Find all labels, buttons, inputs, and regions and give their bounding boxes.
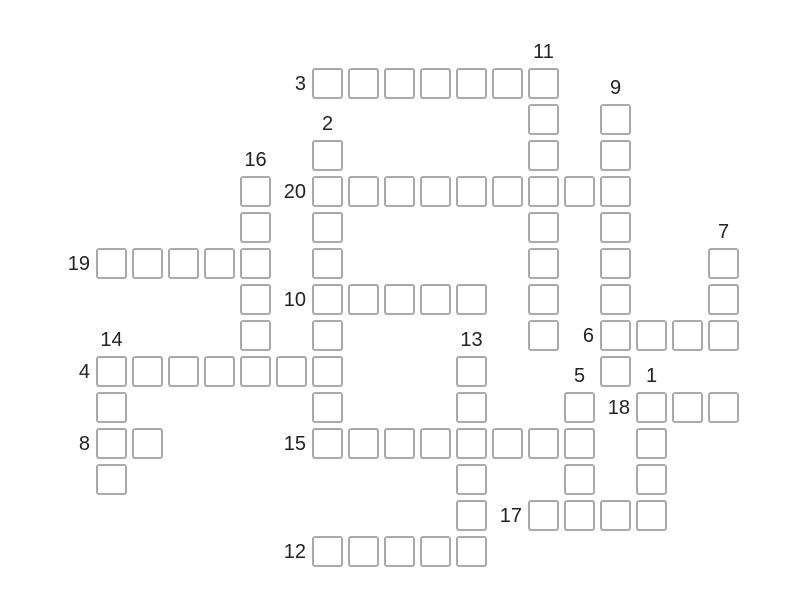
- crossword-cell[interactable]: [528, 68, 559, 99]
- crossword-cell[interactable]: [420, 68, 451, 99]
- crossword-cell[interactable]: [348, 428, 379, 459]
- crossword-cell[interactable]: [384, 68, 415, 99]
- crossword-cell[interactable]: [420, 284, 451, 315]
- crossword-cell[interactable]: [600, 500, 631, 531]
- crossword-cell[interactable]: [96, 356, 127, 387]
- crossword-cell[interactable]: [96, 464, 127, 495]
- crossword-cell[interactable]: [240, 284, 271, 315]
- crossword-cell[interactable]: [528, 104, 559, 135]
- crossword-cell[interactable]: [528, 284, 559, 315]
- clue-number-label: 4: [79, 362, 90, 382]
- crossword-cell[interactable]: [456, 536, 487, 567]
- crossword-cell[interactable]: [420, 428, 451, 459]
- crossword-cell[interactable]: [96, 392, 127, 423]
- crossword-cell[interactable]: [96, 248, 127, 279]
- crossword-cell[interactable]: [312, 392, 343, 423]
- clue-number-label: 19: [68, 254, 90, 274]
- clue-number-label: 1: [646, 366, 657, 386]
- crossword-cell[interactable]: [708, 284, 739, 315]
- crossword-cell[interactable]: [708, 392, 739, 423]
- clue-number-label: 5: [574, 366, 585, 386]
- crossword-cell[interactable]: [600, 320, 631, 351]
- crossword-cell[interactable]: [528, 176, 559, 207]
- crossword-cell[interactable]: [528, 500, 559, 531]
- clue-number-label: 20: [284, 182, 306, 202]
- crossword-cell[interactable]: [96, 428, 127, 459]
- crossword-cell[interactable]: [456, 284, 487, 315]
- crossword-cell[interactable]: [312, 428, 343, 459]
- crossword-cell[interactable]: [456, 68, 487, 99]
- crossword-cell[interactable]: [312, 140, 343, 171]
- clue-number-label: 6: [583, 326, 594, 346]
- crossword-cell[interactable]: [600, 212, 631, 243]
- crossword-cell[interactable]: [312, 248, 343, 279]
- crossword-cell[interactable]: [564, 392, 595, 423]
- crossword-cell[interactable]: [240, 356, 271, 387]
- crossword-cell[interactable]: [456, 500, 487, 531]
- crossword-cell[interactable]: [384, 428, 415, 459]
- crossword-cell[interactable]: [600, 104, 631, 135]
- crossword-cell[interactable]: [708, 320, 739, 351]
- clue-number-label: 9: [610, 78, 621, 98]
- crossword-cell[interactable]: [456, 356, 487, 387]
- crossword-cell[interactable]: [636, 500, 667, 531]
- crossword-cell[interactable]: [204, 248, 235, 279]
- clue-number-label: 18: [608, 398, 630, 418]
- crossword-cell[interactable]: [600, 356, 631, 387]
- crossword-cell[interactable]: [708, 248, 739, 279]
- crossword-board: 1234567891011121314151617181920: [0, 0, 800, 600]
- crossword-cell[interactable]: [384, 176, 415, 207]
- crossword-cell[interactable]: [636, 392, 667, 423]
- crossword-cell[interactable]: [204, 356, 235, 387]
- crossword-cell[interactable]: [132, 428, 163, 459]
- crossword-cell[interactable]: [384, 284, 415, 315]
- crossword-cell[interactable]: [168, 248, 199, 279]
- crossword-cell[interactable]: [600, 248, 631, 279]
- crossword-cell[interactable]: [456, 464, 487, 495]
- clue-number-label: 8: [79, 434, 90, 454]
- crossword-cell[interactable]: [528, 140, 559, 171]
- crossword-cell[interactable]: [564, 500, 595, 531]
- clue-number-label: 12: [284, 542, 306, 562]
- crossword-cell[interactable]: [240, 320, 271, 351]
- crossword-cell[interactable]: [348, 176, 379, 207]
- crossword-cell[interactable]: [600, 176, 631, 207]
- crossword-cell[interactable]: [240, 212, 271, 243]
- crossword-cell[interactable]: [312, 176, 343, 207]
- crossword-cell[interactable]: [312, 320, 343, 351]
- crossword-cell[interactable]: [456, 428, 487, 459]
- crossword-cell[interactable]: [132, 248, 163, 279]
- crossword-cell[interactable]: [528, 320, 559, 351]
- crossword-cell[interactable]: [240, 176, 271, 207]
- crossword-cell[interactable]: [564, 464, 595, 495]
- crossword-cell[interactable]: [132, 356, 163, 387]
- crossword-cell[interactable]: [312, 68, 343, 99]
- crossword-cell[interactable]: [492, 428, 523, 459]
- crossword-cell[interactable]: [564, 428, 595, 459]
- crossword-cell[interactable]: [312, 212, 343, 243]
- crossword-cell[interactable]: [636, 464, 667, 495]
- crossword-cell[interactable]: [528, 212, 559, 243]
- crossword-cell[interactable]: [564, 176, 595, 207]
- crossword-cell[interactable]: [636, 428, 667, 459]
- crossword-cell[interactable]: [600, 284, 631, 315]
- crossword-cell[interactable]: [456, 392, 487, 423]
- crossword-cell[interactable]: [420, 536, 451, 567]
- clue-number-label: 14: [100, 330, 122, 350]
- crossword-cell[interactable]: [456, 176, 487, 207]
- crossword-cell[interactable]: [636, 320, 667, 351]
- clue-number-label: 7: [718, 222, 729, 242]
- crossword-cell[interactable]: [276, 356, 307, 387]
- crossword-cell[interactable]: [348, 68, 379, 99]
- clue-number-label: 3: [295, 74, 306, 94]
- clue-number-label: 13: [460, 330, 482, 350]
- clue-number-label: 11: [533, 42, 554, 62]
- crossword-cell[interactable]: [492, 68, 523, 99]
- crossword-cell[interactable]: [528, 248, 559, 279]
- crossword-cell[interactable]: [240, 248, 271, 279]
- crossword-cell[interactable]: [492, 176, 523, 207]
- crossword-cell[interactable]: [672, 320, 703, 351]
- crossword-cell[interactable]: [312, 284, 343, 315]
- clue-number-label: 15: [284, 434, 306, 454]
- crossword-cell[interactable]: [600, 140, 631, 171]
- crossword-cell[interactable]: [312, 536, 343, 567]
- crossword-cell[interactable]: [528, 428, 559, 459]
- clue-number-label: 2: [322, 114, 333, 134]
- crossword-cell[interactable]: [348, 536, 379, 567]
- crossword-cell[interactable]: [672, 392, 703, 423]
- clue-number-label: 16: [244, 150, 266, 170]
- crossword-cell[interactable]: [168, 356, 199, 387]
- crossword-cell[interactable]: [312, 356, 343, 387]
- clue-number-label: 17: [500, 506, 522, 526]
- crossword-cell[interactable]: [420, 176, 451, 207]
- crossword-cell[interactable]: [384, 536, 415, 567]
- crossword-cell[interactable]: [348, 284, 379, 315]
- clue-number-label: 10: [284, 290, 306, 310]
